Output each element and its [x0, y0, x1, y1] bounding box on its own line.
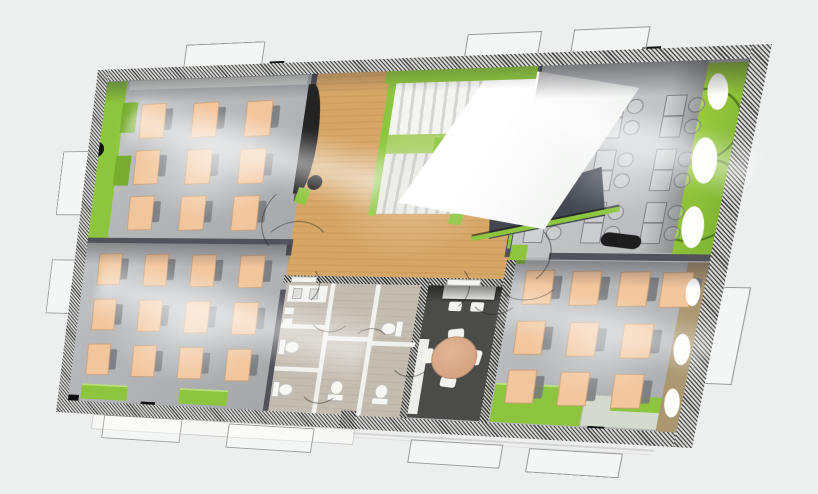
light-streak	[520, 80, 768, 203]
light-streak	[118, 91, 396, 215]
window-swing-outline	[407, 439, 503, 468]
light-fog	[65, 249, 319, 413]
window-swing-outline	[225, 424, 314, 453]
light-fog	[492, 273, 715, 424]
wall-shadow	[535, 58, 751, 99]
window-swing-outline	[101, 415, 182, 443]
render-stage	[0, 0, 818, 494]
layer-atmosphere	[56, 44, 772, 448]
window-swing-outline	[525, 448, 623, 478]
light-fog	[507, 76, 755, 241]
wall-shadow	[426, 285, 503, 303]
light-fog	[93, 84, 335, 242]
light-streak	[88, 251, 380, 386]
wall-shadow	[512, 260, 711, 288]
wall-shadow	[639, 60, 709, 253]
floor-plan	[56, 44, 772, 448]
wall-shadow	[85, 243, 292, 268]
light-streak	[496, 277, 721, 379]
wall-shadow	[105, 74, 317, 104]
wall-shadow	[313, 66, 538, 95]
light-fog	[287, 92, 553, 287]
